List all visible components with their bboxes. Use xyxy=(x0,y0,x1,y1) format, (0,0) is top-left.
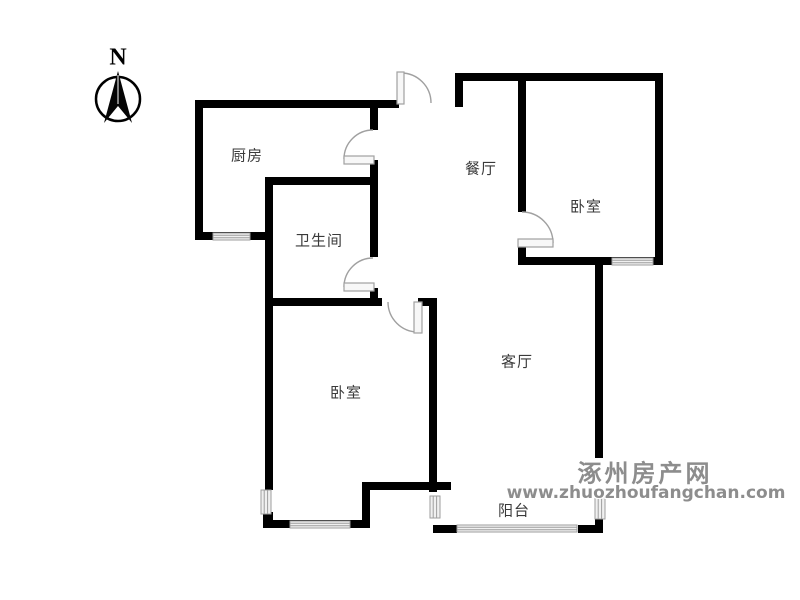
kitchen-window xyxy=(213,233,250,240)
bedroom-south-door xyxy=(388,302,422,333)
wall-west xyxy=(265,177,273,490)
wall-balcony-corner-sw xyxy=(433,525,457,533)
compass-north-label: N xyxy=(109,45,126,72)
wall-kitchen-left xyxy=(195,100,203,240)
wall-bedroom-north-west xyxy=(518,73,526,212)
wall-divider-upper xyxy=(370,103,378,130)
wall-bathroom-top xyxy=(265,177,377,185)
room-label-kitchen: 厨房 xyxy=(231,145,263,166)
floorplan-drawing xyxy=(0,0,800,600)
room-label-dining-room: 餐厅 xyxy=(465,158,497,179)
wall-bedroom-south-east xyxy=(429,298,437,492)
wall-bedroom-south-top-left xyxy=(265,298,382,306)
floorplan-page: N 厨房 卫生间 餐厅 卧室 客厅 卧室 阳台 涿州房产网 www.zhuozh… xyxy=(0,0,800,600)
room-label-bedroom-south: 卧室 xyxy=(330,382,362,403)
wall-kitchen-top xyxy=(195,100,399,108)
bathroom-door xyxy=(344,258,374,291)
compass-icon xyxy=(96,71,140,123)
room-label-bathroom: 卫生间 xyxy=(295,230,343,251)
wall-north xyxy=(455,73,663,81)
kitchen-door xyxy=(344,130,374,164)
room-label-bedroom-north: 卧室 xyxy=(570,196,602,217)
bedroom-south-window xyxy=(290,521,350,528)
entrance-door xyxy=(397,72,431,104)
balcony-west-window xyxy=(430,496,440,518)
wall-living-east xyxy=(595,262,603,458)
bedroom-south-west-window xyxy=(261,490,271,514)
bedroom-north-door xyxy=(518,212,553,247)
room-label-living-room: 客厅 xyxy=(501,351,533,372)
wall-notch-horizontal xyxy=(362,482,451,490)
balcony-railing xyxy=(457,525,577,532)
watermark-site-url: www.zhuozhoufangchan.com xyxy=(507,483,786,503)
wall-bedroom-north-east xyxy=(655,73,663,265)
wall-entry-jog xyxy=(455,73,463,107)
wall-balcony-corner-se xyxy=(578,525,603,533)
wall-divider-middle xyxy=(370,160,378,257)
bedroom-north-window xyxy=(612,258,653,265)
